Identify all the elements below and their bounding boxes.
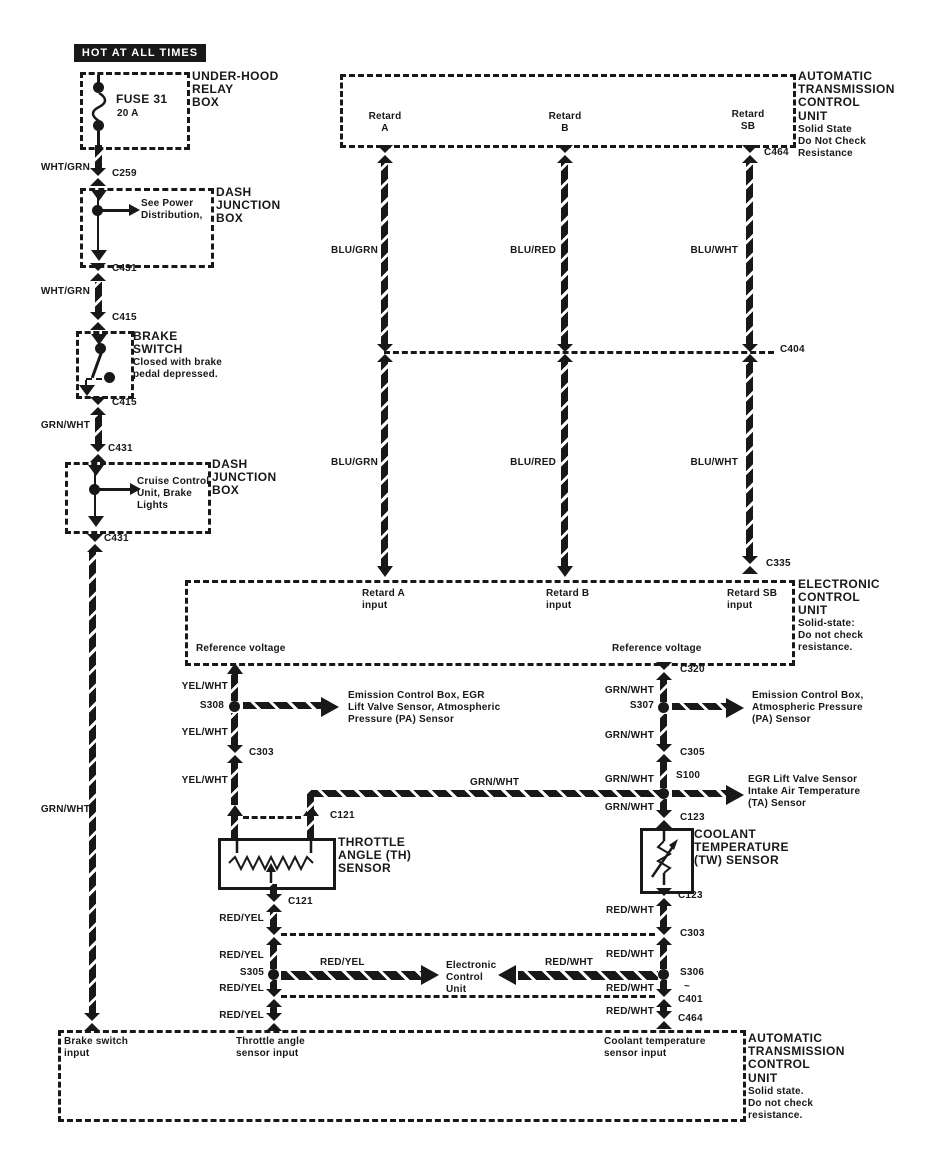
label-c259: C259 <box>112 168 137 180</box>
fuse-lead-bottom <box>97 131 100 145</box>
label-s308-destination: Emission Control Box, EGR Lift Valve Sen… <box>348 690 500 726</box>
label-throttle-angle-input: Throttle angle sensor input <box>236 1036 305 1060</box>
label-see-power-distribution: See Power Distribution, <box>141 198 202 222</box>
throttle-potentiometer-icon <box>221 841 327 883</box>
wire-label-blu-red-1: BLU/RED <box>504 245 556 257</box>
arrow-c121-left-icon <box>227 805 243 816</box>
djb1-internal-wire <box>97 192 99 254</box>
brake-switch-gap <box>86 378 102 380</box>
wire-grn-wht-1 <box>95 415 102 444</box>
wire-s100-branch <box>672 790 726 797</box>
wire-grn-wht-horizontal <box>310 790 664 797</box>
label-c123-bottom: C123 <box>678 890 703 902</box>
label-s308: S308 <box>184 700 224 712</box>
djb1-branch-line <box>99 209 129 212</box>
wire-yel-wht-2 <box>231 713 238 745</box>
arrow-into-djb1-icon <box>91 190 107 201</box>
connector-c415-b-icon <box>90 397 106 415</box>
label-c464-top: C464 <box>764 147 789 159</box>
label-c464-bottom: C464 <box>678 1013 703 1025</box>
wire-grn-wht-r2 <box>660 714 667 744</box>
label-c320: C320 <box>680 664 705 676</box>
fuse-terminal-top <box>93 82 104 93</box>
fuse-terminal-bottom <box>93 120 104 131</box>
label-cruise-control: Cruise Control Unit, Brake Lights <box>137 476 209 512</box>
arrow-into-djb2-icon <box>88 465 104 476</box>
wire-label-grn-wht-r3: GRN/WHT <box>598 774 654 786</box>
arrow-s100-icon <box>726 785 744 805</box>
connector-c401-crossing-right-icon <box>656 989 672 1007</box>
arrow-s306-icon <box>498 965 516 985</box>
wire-grn-wht-r4 <box>660 799 667 810</box>
connector-c464-bottom-icon <box>656 1011 672 1029</box>
label-reference-voltage-right: Reference voltage <box>612 643 702 655</box>
label-retard-b: Retard B <box>535 111 595 135</box>
wire-wht-grn-1 <box>95 145 102 169</box>
label-reference-voltage-left: Reference voltage <box>196 643 286 655</box>
fuse-element-icon <box>90 93 108 121</box>
wire-label-grn-wht-r1: GRN/WHT <box>598 685 654 697</box>
wire-label-red-wht-4: RED/WHT <box>596 1006 654 1018</box>
label-fuse-rating: 20 A <box>117 108 139 120</box>
wire-label-blu-red-2: BLU/RED <box>504 457 556 469</box>
connector-c431-b-icon <box>90 444 106 462</box>
wire-label-yel-wht-2: YEL/WHT <box>174 727 228 739</box>
label-c401-tilde: ~ <box>684 981 690 993</box>
wire-label-red-yel-1: RED/YEL <box>208 913 264 925</box>
label-atcu-bottom-note: Solid state. Do not check resistance. <box>748 1086 813 1122</box>
label-c431-c: C431 <box>104 533 129 545</box>
label-c121-top: C121 <box>330 810 355 822</box>
wire-red-wht-1 <box>660 906 667 928</box>
connector-c303-crossing-left-icon <box>266 927 282 945</box>
arrow-s305-icon <box>421 965 439 985</box>
djb2-internal-wire <box>94 467 96 523</box>
wire-label-blu-grn-2: BLU/GRN <box>326 457 378 469</box>
wiring-diagram: HOT AT ALL TIMES UNDER-HOOD RELAY BOX FU… <box>0 0 946 1162</box>
connector-c305-icon <box>656 744 672 762</box>
label-c123-top: C123 <box>680 812 705 824</box>
connector-throttle-input-icon <box>266 1013 282 1031</box>
hot-at-all-times-banner: HOT AT ALL TIMES <box>74 44 206 62</box>
label-c404: C404 <box>780 344 805 356</box>
label-dash-junction-1: DASH JUNCTION BOX <box>216 186 281 226</box>
wire-red-wht-3 <box>660 980 667 989</box>
connector-c415-a-icon <box>90 312 106 330</box>
label-atcu-top-title: AUTOMATIC TRANSMISSION CONTROL UNIT <box>798 70 895 123</box>
arrow-s307-icon <box>726 698 744 718</box>
label-s100: S100 <box>676 770 700 782</box>
wire-red-yel-1 <box>270 912 277 927</box>
label-c415-a: C415 <box>112 312 137 324</box>
connector-c335-icon <box>742 556 758 574</box>
wire-red-yel-2 <box>270 945 277 969</box>
connector-retard-a-icon <box>377 145 393 163</box>
wire-label-s305-branch: RED/YEL <box>320 957 365 969</box>
wire-label-yel-wht-1: YEL/WHT <box>174 681 228 693</box>
wire-grn-wht-r1 <box>660 680 667 702</box>
label-s307: S307 <box>612 700 654 712</box>
connector-c303-left-icon <box>227 745 243 763</box>
wire-th-terminal-left <box>231 816 238 838</box>
wire-label-wht-grn-1: WHT/GRN <box>26 162 90 174</box>
wire-yel-wht-3 <box>231 763 238 805</box>
wire-blu-grn-lower <box>381 362 388 566</box>
label-ecu-destination: Electronic Control Unit <box>446 960 496 996</box>
arrow-out-djb1-icon <box>91 250 107 261</box>
connector-c401-crossing-left-icon <box>266 989 282 1007</box>
label-c415-b: C415 <box>112 397 137 409</box>
label-underhood-relay-box: UNDER-HOOD RELAY BOX <box>192 70 279 110</box>
wire-blu-wht-lower <box>746 362 753 556</box>
label-s307-destination: Emission Control Box, Atmospheric Pressu… <box>752 690 863 726</box>
label-retard-sb-input: Retard SB input <box>727 588 777 612</box>
wire-label-red-yel-4: RED/YEL <box>208 1010 264 1022</box>
arrow-out-djb2-icon <box>88 516 104 527</box>
wire-wht-grn-2 <box>95 282 102 314</box>
connector-c464-top-icon <box>742 145 758 163</box>
connector-c121-bottom-icon <box>266 894 282 912</box>
wire-label-blu-wht-1: BLU/WHT <box>686 245 738 257</box>
brake-switch-exit-arrow-icon <box>79 385 95 396</box>
brake-switch-contact-bottom <box>104 372 115 383</box>
label-c303-right: C303 <box>680 928 705 940</box>
arrow-retard-a-into-ecu-icon <box>377 566 393 577</box>
connector-c431-c-icon <box>87 534 103 552</box>
wire-label-blu-grn-1: BLU/GRN <box>326 245 378 257</box>
wire-s306-to-ecu <box>518 971 658 980</box>
connector-c404-b-icon <box>557 344 573 362</box>
label-retard-a-input: Retard A input <box>362 588 405 612</box>
label-retard-a: Retard A <box>355 111 415 135</box>
label-coolant-temp-input: Coolant temperature sensor input <box>604 1036 706 1060</box>
connector-c259-icon <box>90 168 106 186</box>
wire-s307-branch <box>672 703 726 710</box>
label-c401: C401 <box>678 994 703 1006</box>
label-retard-sb: Retard SB <box>718 109 778 133</box>
wire-s305-to-ecu <box>281 971 421 980</box>
label-brake-switch-note: Closed with brake pedal depressed. <box>133 357 222 381</box>
label-atcu-bottom-title: AUTOMATIC TRANSMISSION CONTROL UNIT <box>748 1032 845 1085</box>
wire-label-grn-wht-r4: GRN/WHT <box>598 802 654 814</box>
arrow-refvolt-left-icon <box>227 663 243 674</box>
coolant-thermistor-icon <box>643 831 685 885</box>
label-atcu-top-note: Solid State Do Not Check Resistance <box>798 124 866 160</box>
wire-grn-wht-r3 <box>660 762 667 788</box>
splice-s305-dot <box>268 969 279 980</box>
wire-label-grn-wht-r2: GRN/WHT <box>598 730 654 742</box>
label-s306: S306 <box>680 967 704 979</box>
connector-c123-top-icon <box>656 810 672 828</box>
wire-label-red-yel-2: RED/YEL <box>208 950 264 962</box>
wire-label-grn-wht-1: GRN/WHT <box>26 420 90 432</box>
connector-c401-line <box>281 995 655 998</box>
djb2-branch-line <box>96 488 130 491</box>
wire-label-yel-wht-3: YEL/WHT <box>174 775 228 787</box>
wire-label-red-wht-1: RED/WHT <box>596 905 654 917</box>
label-c431-a: C431 <box>112 263 137 275</box>
label-c121-bottom: C121 <box>288 896 313 908</box>
wire-label-grn-wht-long: GRN/WHT <box>26 804 90 816</box>
wire-label-grn-wht-horizontal: GRN/WHT <box>470 777 519 789</box>
connector-c123-bottom-icon <box>656 888 672 906</box>
wire-red-yel-0 <box>270 884 277 894</box>
label-brake-switch-input: Brake switch input <box>64 1036 128 1060</box>
wire-grn-wht-long <box>89 552 96 1014</box>
wire-blu-red-upper <box>561 163 568 344</box>
wire-label-s306-branch: RED/WHT <box>545 957 593 969</box>
wire-label-blu-wht-2: BLU/WHT <box>686 457 738 469</box>
label-dash-junction-2: DASH JUNCTION BOX <box>212 458 277 498</box>
connector-c320-icon <box>656 662 672 680</box>
splice-s307-dot <box>658 702 669 713</box>
connector-c404-sb-icon <box>742 344 758 362</box>
wire-label-wht-grn-2: WHT/GRN <box>26 286 90 298</box>
label-c303-left: C303 <box>249 747 274 759</box>
splice-s306-dot <box>658 969 669 980</box>
splice-s100-dot <box>658 788 669 799</box>
connector-c404-a-icon <box>377 344 393 362</box>
connector-c121-line <box>243 816 301 819</box>
label-c335: C335 <box>766 558 791 570</box>
label-retard-b-input: Retard B input <box>546 588 589 612</box>
label-ecu-note: Solid-state: Do not check resistance. <box>798 618 863 654</box>
connector-brake-input-icon <box>84 1013 100 1031</box>
wire-blu-grn-upper <box>381 163 388 344</box>
label-ecu-title: ELECTRONIC CONTROL UNIT <box>798 578 880 618</box>
label-c431-b: C431 <box>108 443 133 455</box>
label-s100-destination: EGR Lift Valve Sensor Intake Air Tempera… <box>748 774 860 810</box>
wire-blu-red-lower <box>561 362 568 566</box>
label-coolant-sensor: COOLANT TEMPERATURE (TW) SENSOR <box>694 828 789 868</box>
wire-label-red-wht-3: RED/WHT <box>596 983 654 995</box>
label-throttle-sensor: THROTTLE ANGLE (TH) SENSOR <box>338 836 411 876</box>
connector-retard-b-icon <box>557 145 573 163</box>
wire-blu-wht-upper <box>746 163 753 344</box>
arrow-s308-icon <box>321 697 339 717</box>
splice-s308-dot <box>229 701 240 712</box>
wire-label-red-yel-3: RED/YEL <box>208 983 264 995</box>
connector-c303-line <box>281 933 655 936</box>
connector-c431-a-icon <box>90 263 106 281</box>
label-fuse-name: FUSE 31 <box>116 93 168 106</box>
arrow-retard-b-into-ecu-icon <box>557 566 573 577</box>
wire-label-red-wht-2: RED/WHT <box>596 949 654 961</box>
label-brake-switch-title: BRAKE SWITCH <box>133 330 183 356</box>
wire-s308-branch <box>243 702 321 709</box>
label-s305: S305 <box>224 967 264 979</box>
wire-red-wht-2 <box>660 945 667 969</box>
wire-grn-wht-bend <box>307 790 314 838</box>
label-c305: C305 <box>680 747 705 759</box>
connector-c303-crossing-right-icon <box>656 927 672 945</box>
djb1-branch-arrow-icon <box>129 204 140 216</box>
wire-yel-wht-1 <box>231 674 238 701</box>
connector-c404-line <box>384 351 774 354</box>
